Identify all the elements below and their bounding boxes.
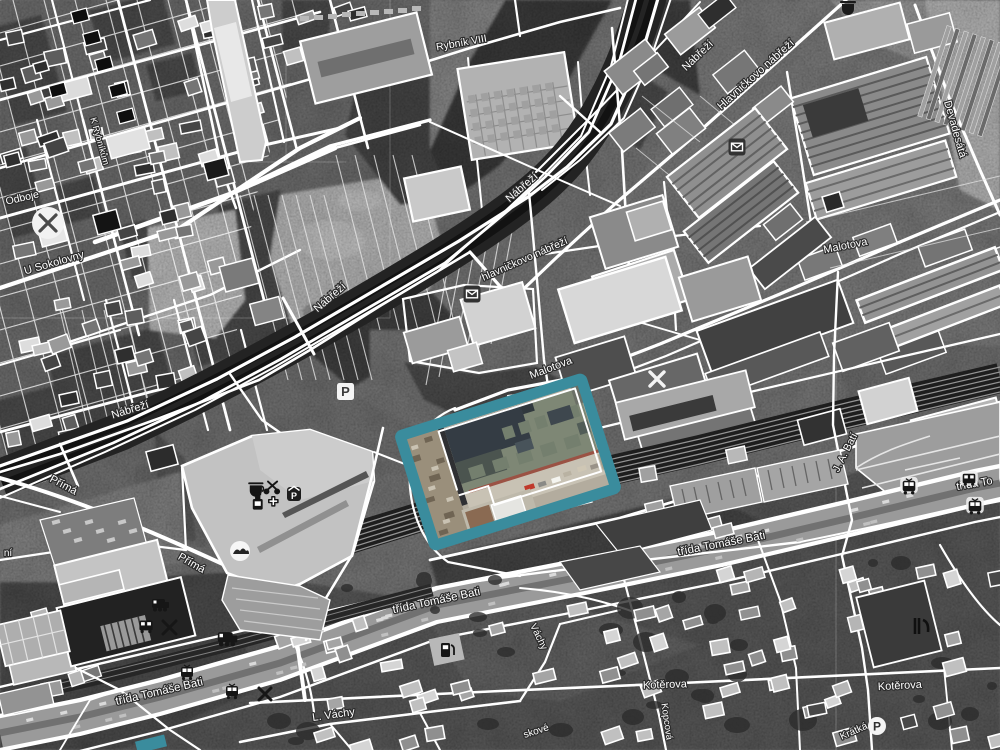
svg-text:ní: ní bbox=[4, 548, 13, 559]
svg-text:P: P bbox=[291, 491, 297, 501]
svg-text:P: P bbox=[341, 384, 350, 399]
svg-text:Kotěrova: Kotěrova bbox=[878, 679, 923, 693]
svg-text:P: P bbox=[873, 720, 881, 734]
svg-text:Kotěrova: Kotěrova bbox=[643, 678, 688, 692]
